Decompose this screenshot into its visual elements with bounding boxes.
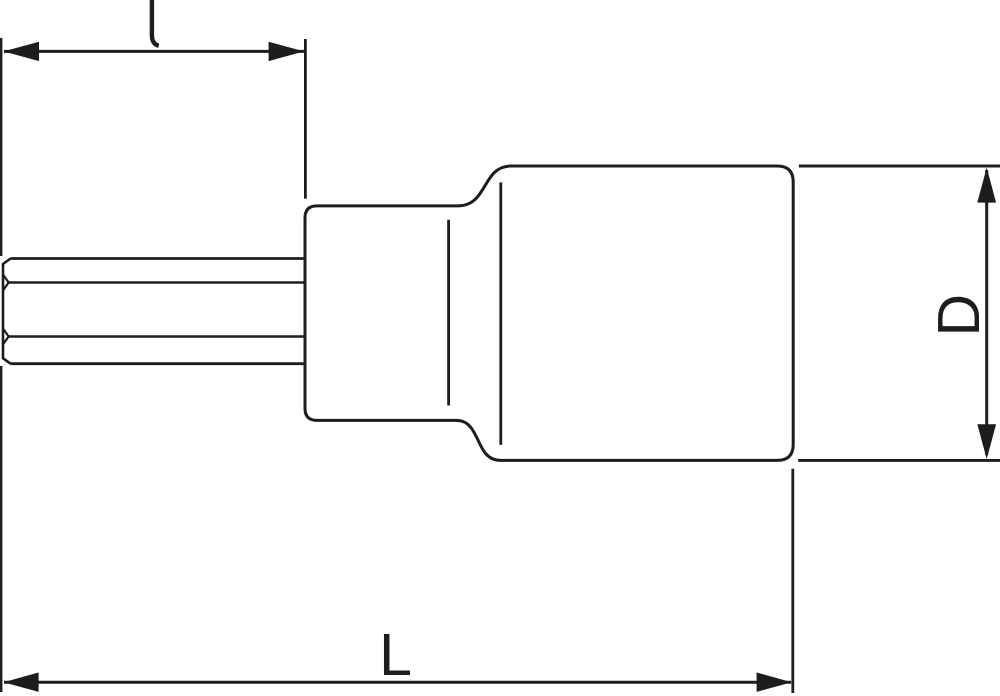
svg-text:D: D (926, 294, 992, 337)
svg-text:L: L (379, 622, 412, 688)
